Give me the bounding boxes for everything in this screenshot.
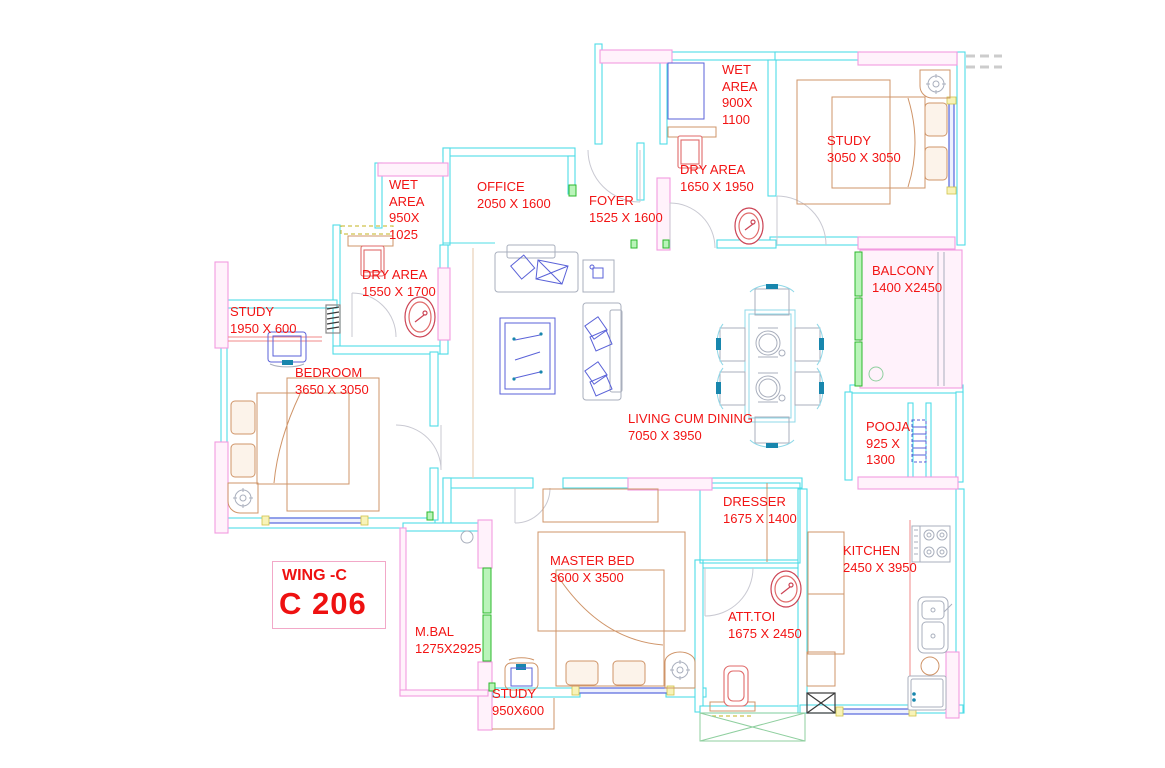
bedside-unit-icon bbox=[920, 70, 950, 98]
service-duct bbox=[700, 713, 805, 741]
washbasin-icon bbox=[735, 208, 763, 244]
room-label-master-bed: MASTER BED 3600 X 3500 bbox=[550, 553, 635, 586]
stove-icon bbox=[912, 526, 950, 562]
washbasin-icon bbox=[405, 297, 435, 337]
shaft-crosshatch bbox=[807, 652, 835, 686]
room-label-balcony: BALCONY 1400 X2450 bbox=[872, 263, 942, 296]
room-label-living: LIVING CUM DINING 7050 X 3950 bbox=[628, 411, 753, 444]
room-label-study-top-right: STUDY 3050 X 3050 bbox=[827, 133, 901, 166]
bedside-unit-icon bbox=[665, 652, 695, 688]
room-label-att-toi: ATT.TOI 1675 X 2450 bbox=[728, 609, 802, 642]
sill-hatch bbox=[348, 236, 393, 246]
room-label-office: OFFICE 2050 X 1600 bbox=[477, 179, 551, 212]
side-table-icon bbox=[583, 260, 614, 292]
sofa-icon bbox=[583, 303, 622, 400]
floor-plan-screenshot: WET AREA 900X 1100 DRY AREA 1650 X 1950 … bbox=[0, 0, 1165, 768]
room-label-dry-area-right: DRY AREA 1650 X 1950 bbox=[680, 162, 754, 195]
continuation-dashes bbox=[966, 56, 1002, 67]
sink-icon bbox=[918, 597, 952, 653]
rug-icon bbox=[500, 318, 555, 394]
bedside-unit-icon bbox=[228, 483, 258, 513]
bed-icon bbox=[556, 570, 664, 686]
sliding-wardrobe-icon bbox=[543, 489, 658, 522]
room-label-study-left: STUDY 1950 X 600 bbox=[230, 304, 297, 337]
washbasin-icon bbox=[771, 571, 801, 607]
room-label-bedroom: BEDROOM 3650 X 3050 bbox=[295, 365, 369, 398]
sofa-icon bbox=[495, 245, 578, 292]
bedroom-furniture bbox=[228, 332, 379, 513]
room-label-study-bottom: STUDY 950X600 bbox=[492, 686, 544, 719]
wing-label: WING -C bbox=[282, 567, 385, 585]
room-label-pooja: POOJA 925 X 1300 bbox=[866, 419, 910, 469]
unit-number-box: WING -C C 206 bbox=[272, 561, 386, 629]
room-label-kitchen: KITCHEN 2450 X 3950 bbox=[843, 543, 917, 576]
room-label-dry-area-left: DRY AREA 1550 X 1700 bbox=[362, 267, 436, 300]
room-label-foyer: FOYER 1525 X 1600 bbox=[589, 193, 663, 226]
floor-plan-drawing bbox=[0, 0, 1165, 768]
tv-desk-icon bbox=[228, 332, 322, 367]
room-label-wet-area-left: WET AREA 950X 1025 bbox=[389, 177, 424, 243]
room-label-wet-area-top: WET AREA 900X 1100 bbox=[722, 62, 757, 128]
entry-shaft bbox=[668, 63, 704, 119]
pooja-ladder-shaft bbox=[912, 420, 926, 462]
room-label-dresser: DRESSER 1675 X 1400 bbox=[723, 494, 797, 527]
fridge-icon bbox=[908, 676, 946, 710]
vent-window bbox=[341, 226, 393, 234]
toilet-icon bbox=[724, 666, 748, 706]
mbal-circle bbox=[461, 531, 473, 543]
gas-cylinder-icon bbox=[921, 657, 939, 675]
room-label-m-bal: M.BAL 1275X2925 bbox=[415, 624, 482, 657]
unit-number: C 206 bbox=[279, 586, 385, 622]
bed-icon bbox=[231, 393, 349, 484]
